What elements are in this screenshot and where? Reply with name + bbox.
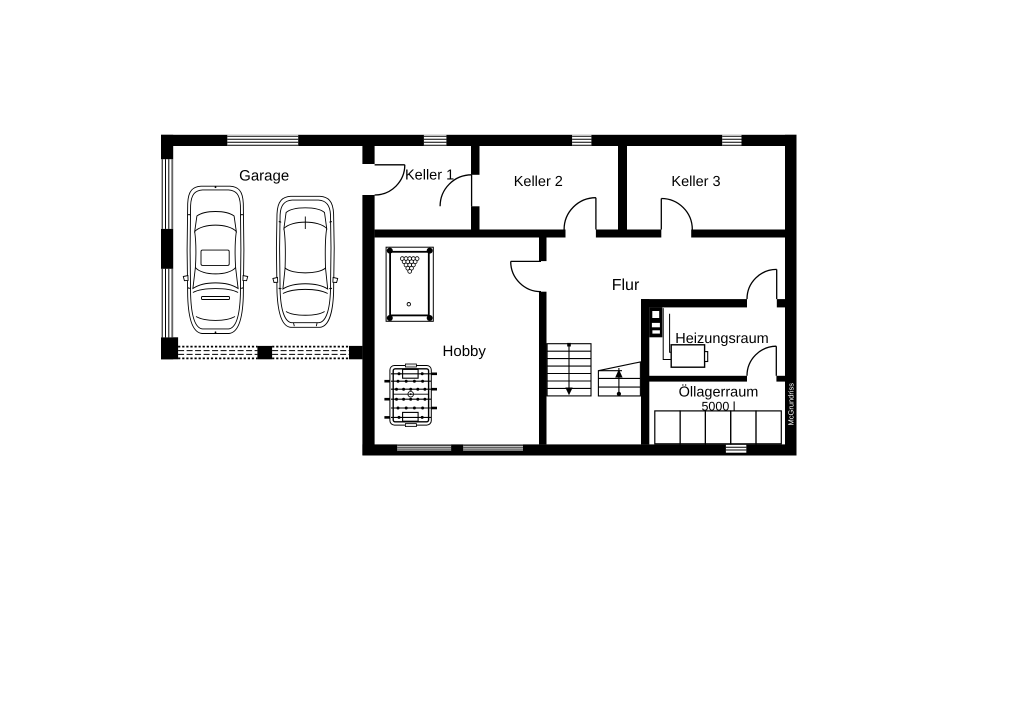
svg-text:McGrundriss: McGrundriss bbox=[787, 383, 796, 426]
svg-text:Öllagerraum: Öllagerraum bbox=[679, 384, 759, 401]
svg-text:Flur: Flur bbox=[612, 277, 640, 294]
svg-text:Hobby: Hobby bbox=[443, 343, 487, 360]
svg-text:Keller 2: Keller 2 bbox=[514, 174, 563, 190]
svg-text:Keller 1: Keller 1 bbox=[405, 168, 454, 184]
svg-text:Garage: Garage bbox=[239, 168, 289, 185]
svg-text:5000 l: 5000 l bbox=[701, 400, 735, 414]
svg-text:Keller 3: Keller 3 bbox=[671, 174, 720, 190]
svg-text:Heizungsraum: Heizungsraum bbox=[675, 331, 769, 347]
